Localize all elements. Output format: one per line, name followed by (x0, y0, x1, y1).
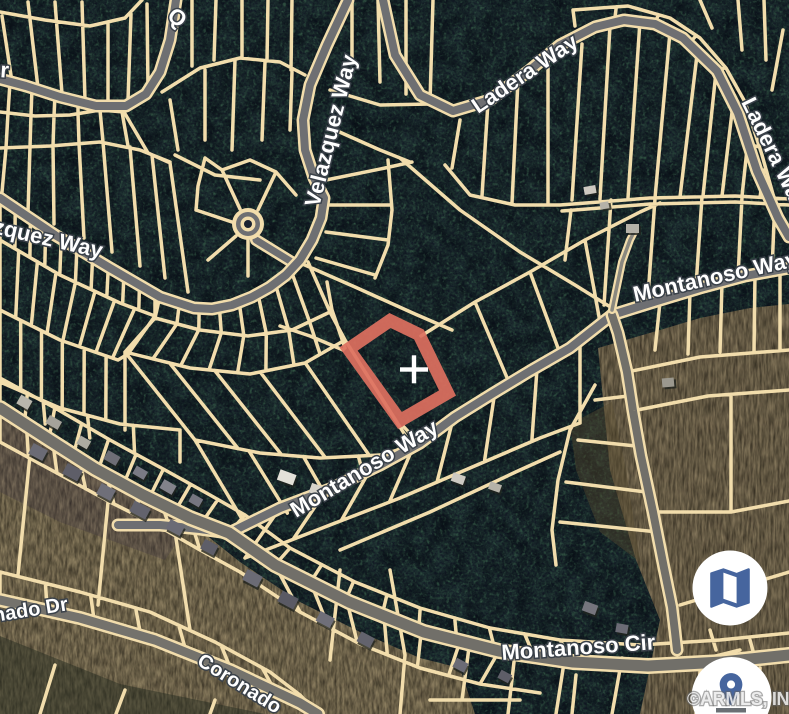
svg-text:©ARMLS, INC: ©ARMLS, INC (687, 689, 789, 709)
